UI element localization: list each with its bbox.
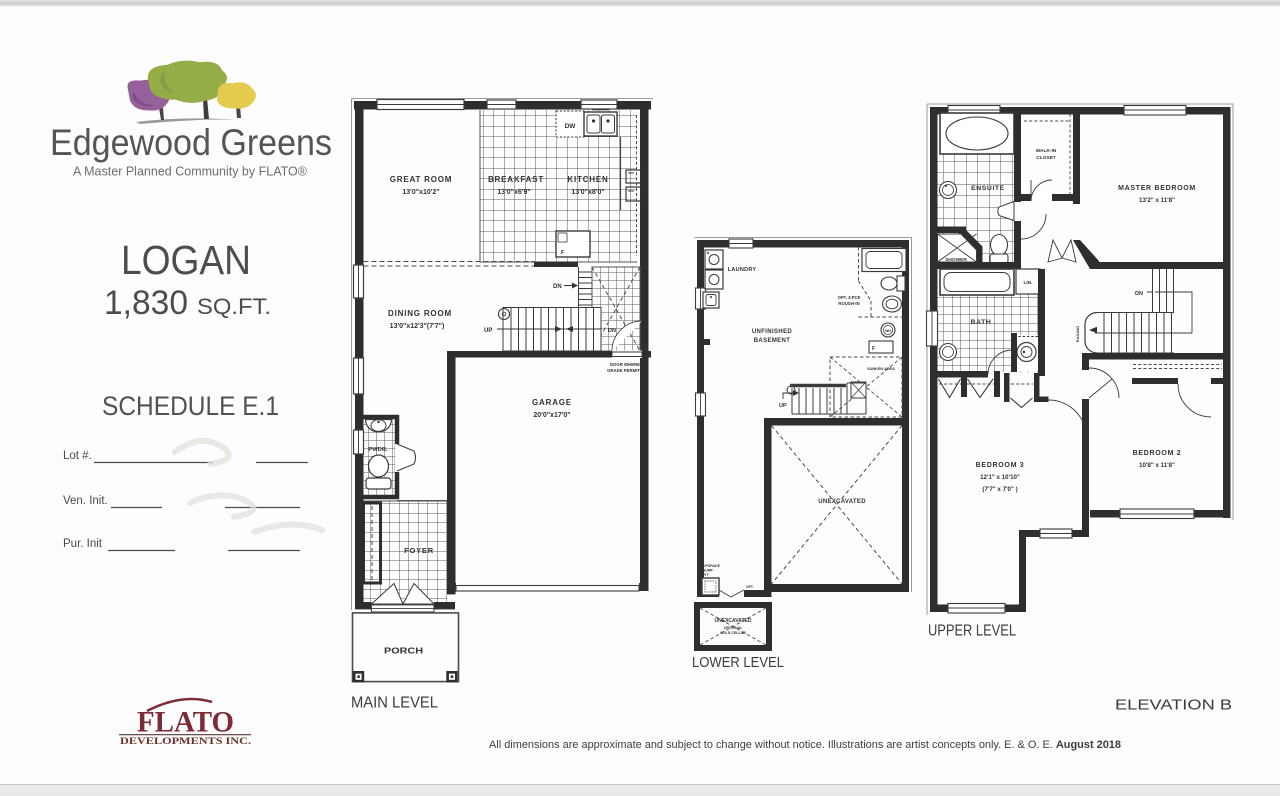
svg-text:Ven. Init.: Ven. Init.	[63, 495, 108, 507]
svg-text:13'2" x 11'8": 13'2" x 11'8"	[1139, 197, 1175, 204]
svg-text:COLD CELLAR: COLD CELLAR	[720, 631, 746, 635]
svg-text:A Master Planned Community by: A Master Planned Community by FLATO®	[73, 165, 308, 179]
svg-text:DN: DN	[1135, 291, 1143, 297]
svg-text:BEDROOM 3: BEDROOM 3	[976, 462, 1025, 469]
svg-text:BREAKFAST: BREAKFAST	[488, 175, 544, 184]
svg-text:UPGRADE: UPGRADE	[703, 564, 721, 568]
svg-text:10'8" x 11'8": 10'8" x 11'8"	[1139, 462, 1175, 469]
svg-text:ROUGH-IN: ROUGH-IN	[838, 301, 859, 306]
svg-text:DW: DW	[565, 123, 577, 130]
svg-text:KITCHEN: KITCHEN	[567, 175, 608, 184]
svg-text:FLATO: FLATO	[137, 706, 234, 739]
svg-text:DINING ROOM: DINING ROOM	[388, 309, 452, 318]
svg-text:GREAT ROOM: GREAT ROOM	[390, 175, 453, 184]
svg-text:(7'7" x 7'0" ): (7'7" x 7'0" )	[982, 486, 1017, 493]
svg-text:CLOSET: CLOSET	[1036, 155, 1056, 161]
svg-text:OPT.: OPT.	[746, 585, 754, 589]
svg-text:DN: DN	[608, 328, 616, 334]
svg-text:WALK-IN: WALK-IN	[1036, 148, 1057, 154]
svg-text:SUNKEN AREA: SUNKEN AREA	[867, 367, 895, 371]
svg-text:DOOR: DOOR	[746, 590, 757, 594]
svg-text:Lot #.: Lot #.	[63, 450, 92, 462]
svg-text:UNEXCAVATED: UNEXCAVATED	[818, 499, 866, 505]
svg-text:13'0"x10'2": 13'0"x10'2"	[402, 189, 439, 196]
svg-text:ENSUITE: ENSUITE	[971, 185, 1005, 192]
svg-text:ELEVATION B: ELEVATION B	[1115, 698, 1232, 714]
svg-text:DEVELOPMENTS INC.: DEVELOPMENTS INC.	[120, 737, 251, 747]
svg-text:PORCH: PORCH	[384, 646, 423, 656]
svg-text:MAIN LEVEL: MAIN LEVEL	[351, 695, 438, 712]
svg-text:BASEMENT: BASEMENT	[754, 338, 791, 344]
svg-text:FOYER: FOYER	[404, 546, 434, 555]
svg-text:GRADE PERMITS: GRADE PERMITS	[607, 368, 643, 373]
svg-text:LIN.: LIN.	[1023, 280, 1032, 286]
svg-text:13'0"x8'0": 13'0"x8'0"	[571, 189, 604, 196]
svg-text:OPTIONAL: OPTIONAL	[724, 626, 743, 630]
svg-text:20'0"x17'0": 20'0"x17'0"	[533, 412, 570, 419]
svg-text:LOGAN: LOGAN	[121, 237, 251, 283]
svg-text:LAUNDRY: LAUNDRY	[728, 267, 757, 273]
svg-text:SQ.FT.: SQ.FT.	[197, 294, 271, 319]
svg-text:UP: UP	[779, 403, 787, 409]
svg-text:WH: WH	[885, 329, 891, 333]
svg-text:1,830: 1,830	[104, 284, 188, 322]
svg-text:Edgewood Greens: Edgewood Greens	[50, 122, 332, 163]
svg-text:UP: UP	[484, 328, 492, 334]
svg-text:LOWER LEVEL: LOWER LEVEL	[692, 655, 784, 671]
svg-text:UNFINISHED: UNFINISHED	[752, 329, 793, 335]
svg-text:DOOR WHERE: DOOR WHERE	[610, 362, 640, 367]
svg-text:DN: DN	[553, 284, 562, 290]
svg-text:UNEXCAVATED: UNEXCAVATED	[715, 618, 752, 624]
svg-text:F: F	[872, 346, 875, 352]
svg-text:PWDR.: PWDR.	[368, 447, 388, 453]
svg-text:BATH: BATH	[971, 319, 992, 326]
svg-text:PIT: PIT	[703, 573, 709, 577]
svg-text:BEDROOM 2: BEDROOM 2	[1133, 450, 1182, 457]
svg-text:UPPER LEVEL: UPPER LEVEL	[928, 623, 1016, 640]
svg-text:OPT. 3-PCE: OPT. 3-PCE	[838, 295, 861, 300]
svg-text:SUMP: SUMP	[703, 569, 714, 573]
svg-text:All dimensions are approximate: All dimensions are approximate and subje…	[489, 739, 1121, 751]
svg-text:Pur. Init: Pur. Init	[63, 538, 103, 550]
svg-text:RAILING: RAILING	[1075, 326, 1080, 342]
svg-text:13'0"x6'9": 13'0"x6'9"	[497, 189, 530, 196]
svg-text:12'1" x 10'10": 12'1" x 10'10"	[980, 474, 1020, 481]
svg-text:GARAGE: GARAGE	[532, 398, 572, 407]
svg-text:MASTER BEDROOM: MASTER BEDROOM	[1118, 185, 1196, 192]
svg-text:13'0"x12'3"(7'7"): 13'0"x12'3"(7'7")	[390, 323, 445, 330]
